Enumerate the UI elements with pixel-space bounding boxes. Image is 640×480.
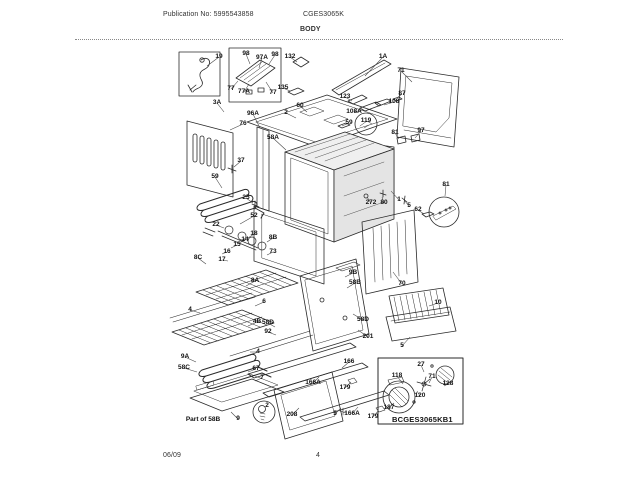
callout-leader-lines (0, 0, 640, 480)
footer-page-number: 4 (316, 452, 320, 459)
parts-catalog-page: Publication No: 5995543858 CGES3065K BOD… (0, 0, 640, 480)
inset-model-label: BCGES3065KB1 (392, 415, 453, 424)
footer-date: 06/09 (163, 452, 181, 459)
